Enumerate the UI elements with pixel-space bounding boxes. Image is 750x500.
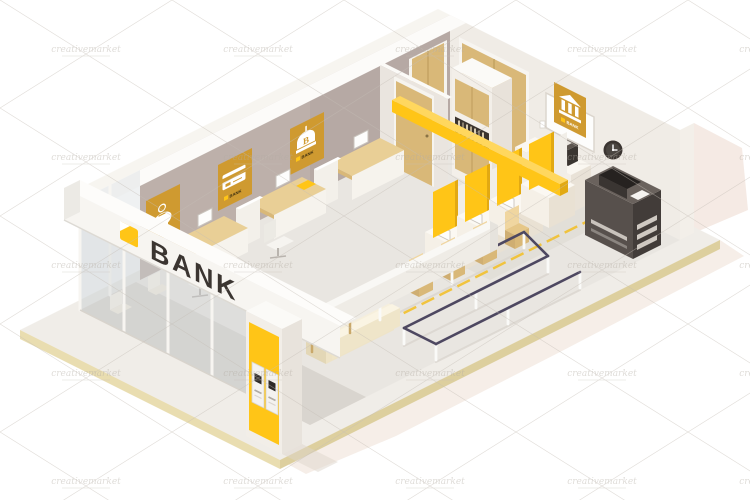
bank-isometric-illustration: creativemarket [0, 0, 750, 500]
watermark-overlay [0, 0, 750, 500]
